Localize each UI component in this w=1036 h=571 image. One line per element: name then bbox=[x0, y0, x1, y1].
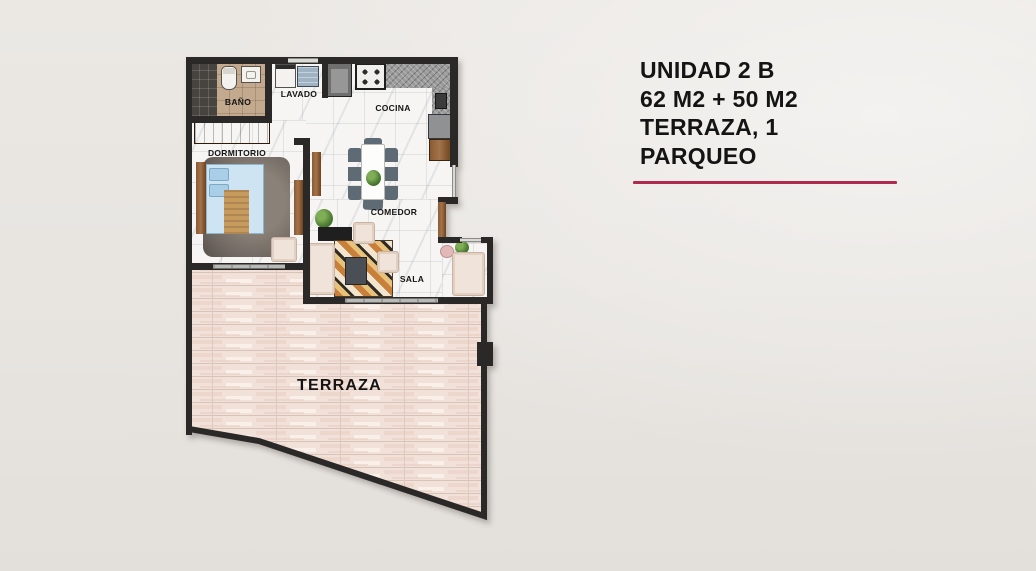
sala-tv-stand bbox=[318, 227, 352, 241]
unit-title: UNIDAD 2 B bbox=[640, 56, 940, 85]
label-lavado: LAVADO bbox=[276, 89, 322, 99]
wall-left bbox=[186, 57, 192, 435]
label-cocina: COCINA bbox=[370, 103, 416, 113]
bathroom-sink bbox=[241, 66, 261, 83]
dining-centerpiece-plant bbox=[366, 170, 381, 186]
bed bbox=[206, 164, 264, 234]
bedroom-armchair bbox=[271, 237, 297, 262]
unit-terrace: TERRAZA, 1 bbox=[640, 113, 940, 142]
bedroom-tv-console bbox=[294, 180, 303, 235]
dining-chairs-left bbox=[348, 148, 362, 200]
wall-bano-bottom bbox=[186, 116, 272, 123]
kitchen-cabinet bbox=[429, 139, 452, 161]
unit-area: 62 M2 + 50 M2 bbox=[640, 85, 940, 114]
label-sala: SALA bbox=[398, 274, 426, 284]
bedroom-closet bbox=[194, 121, 270, 144]
wall-dorm-right bbox=[303, 145, 310, 269]
wall-bano-divider bbox=[265, 57, 272, 122]
shower bbox=[190, 61, 217, 118]
refrigerator bbox=[327, 63, 352, 97]
terraza-column bbox=[477, 342, 493, 366]
dining-chairs-right bbox=[384, 148, 398, 200]
wall-nook-top-a bbox=[438, 237, 462, 243]
kitchen-sink-counter bbox=[432, 88, 452, 115]
wall-comedor-right-wood bbox=[438, 202, 446, 240]
toilet bbox=[221, 66, 237, 90]
info-underline bbox=[633, 181, 897, 184]
washer-2 bbox=[297, 66, 319, 87]
unit-parking: PARQUEO bbox=[640, 142, 940, 171]
window-right bbox=[452, 165, 456, 201]
kitchen-counter bbox=[386, 63, 450, 88]
floor-plan-page: BAÑO LAVADO COCINA DORMITORIO COMEDOR SA… bbox=[0, 0, 1036, 571]
washer bbox=[275, 64, 296, 88]
sala-coffee-table bbox=[345, 257, 367, 285]
label-bano: BAÑO bbox=[218, 97, 258, 107]
stove bbox=[355, 63, 386, 90]
wall-lavado-stub bbox=[322, 57, 328, 98]
dorm-terrace-slider-door bbox=[213, 264, 285, 269]
wall-right-kitchen bbox=[450, 57, 458, 167]
unit-info: UNIDAD 2 B 62 M2 + 50 M2 TERRAZA, 1 PARQ… bbox=[640, 56, 940, 170]
label-terraza: TERRAZA bbox=[297, 377, 377, 395]
window-nook-top bbox=[460, 238, 483, 242]
wall-dorm-right-stub bbox=[294, 138, 310, 145]
kitchen-fridge bbox=[428, 114, 452, 139]
comedor-console bbox=[312, 152, 321, 196]
wall-nook-right bbox=[487, 237, 493, 303]
window-top-lavado bbox=[288, 58, 318, 63]
sala-plant bbox=[315, 209, 333, 228]
sala-sofa bbox=[308, 243, 335, 295]
label-dormitorio: DORMITORIO bbox=[206, 148, 268, 158]
sala-armchair-top bbox=[353, 222, 375, 244]
nook-sofa bbox=[452, 252, 485, 296]
bed-headboard bbox=[196, 162, 206, 234]
label-comedor: COMEDOR bbox=[369, 207, 419, 217]
sala-terrace-slider-door bbox=[345, 298, 438, 303]
sala-armchair-right bbox=[377, 251, 399, 273]
